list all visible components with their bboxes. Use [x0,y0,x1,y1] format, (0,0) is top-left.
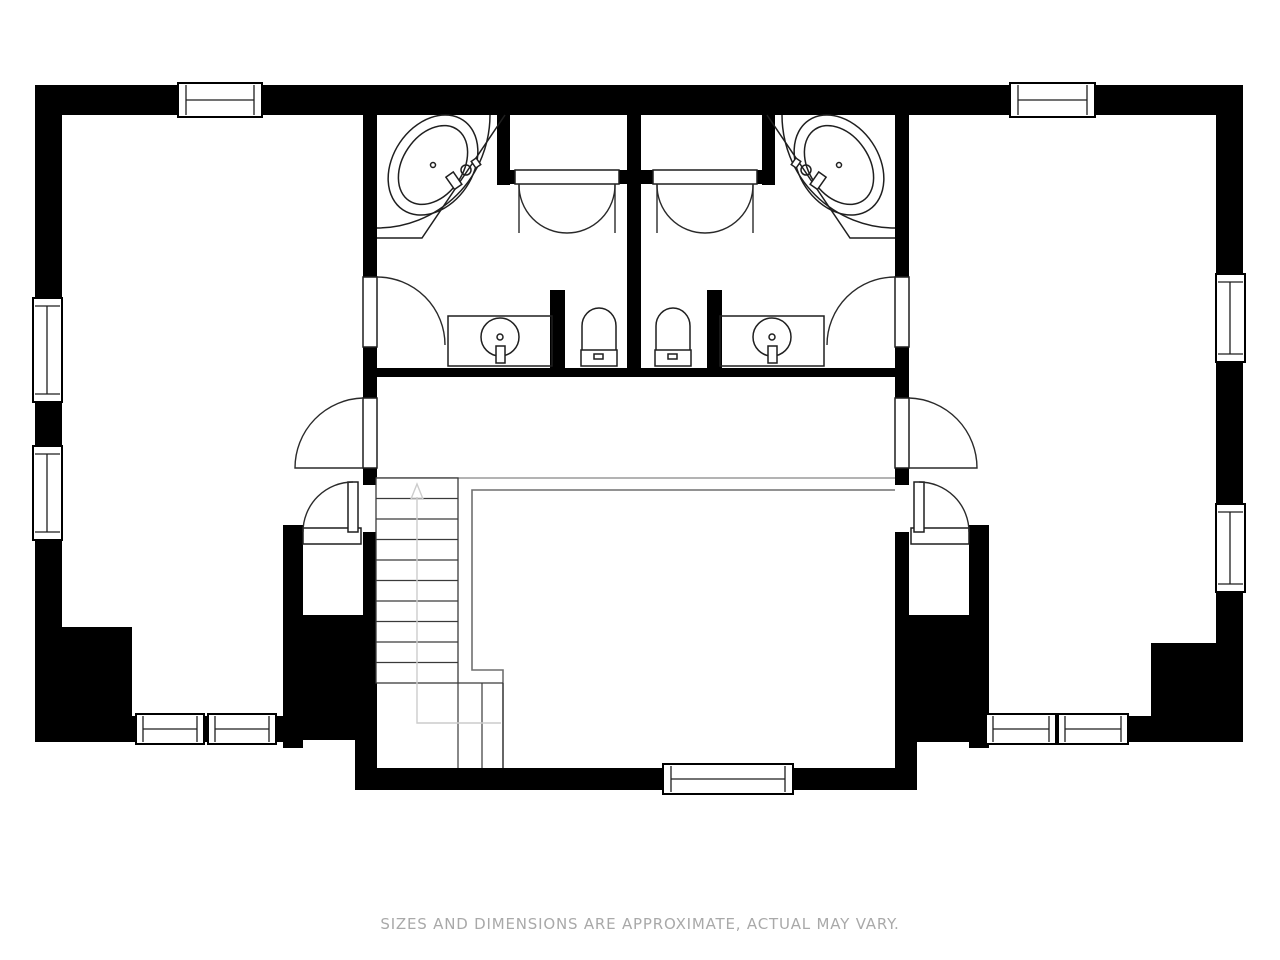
window-bottom-right-pair [986,714,1128,744]
tub-faucet-left [446,158,481,189]
disclaimer-text: SIZES AND DIMENSIONS ARE APPROXIMATE, AC… [0,915,1280,933]
window-bottom-center [663,764,793,794]
window-left-upper [33,298,62,402]
bathroom-door-left [363,277,445,347]
closet-door-left [303,482,361,544]
staircase [376,478,503,768]
floor-plan-drawing [0,0,1280,960]
closet-double-doors-right [653,170,757,233]
vanity-left [448,316,552,366]
interior-walls [283,115,989,790]
toilet-right [655,308,691,366]
closet-double-doors-left [515,170,619,233]
bathtub-right [767,98,902,238]
bedroom-door-left [295,398,377,468]
tub-faucet-right [791,158,826,189]
window-left-lower [33,446,62,540]
window-right-lower [1216,504,1245,592]
floor-plan-page: SIZES AND DIMENSIONS ARE APPROXIMATE, AC… [0,0,1280,960]
window-top-right [1010,83,1095,117]
toilet-left [581,308,617,366]
bathroom-door-right [827,277,909,347]
window-top-left [178,83,262,117]
bathtub-left [370,98,505,238]
window-right-upper [1216,274,1245,362]
vanity-right [720,316,824,366]
closet-door-right [911,482,969,544]
bedroom-door-right [895,398,977,468]
